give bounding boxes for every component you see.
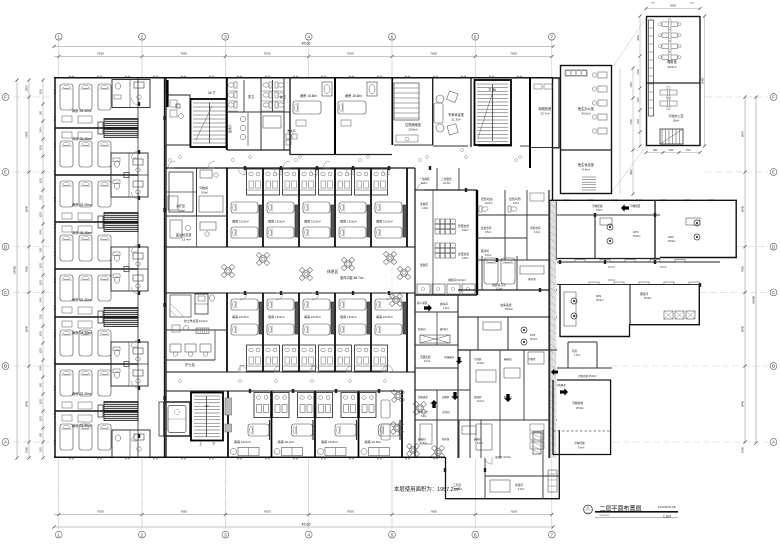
svg-text:2#: 2# xyxy=(205,404,209,408)
svg-text:7630: 7630 xyxy=(430,52,437,56)
svg-text:35.9m²: 35.9m² xyxy=(633,235,641,238)
svg-text:35.9m²: 35.9m² xyxy=(596,299,604,302)
svg-text:800: 800 xyxy=(40,110,43,115)
svg-text:医生检查室: 医生检查室 xyxy=(176,232,191,237)
svg-text:本层使用面积为：1957.2m²: 本层使用面积为：1957.2m² xyxy=(394,485,460,493)
svg-text:动物通道: 动物通道 xyxy=(418,395,428,399)
svg-text:污物间: 污物间 xyxy=(199,185,208,190)
svg-text:病房 28.45m²: 病房 28.45m² xyxy=(72,423,93,428)
svg-text:4: 4 xyxy=(307,532,310,537)
svg-text:病房 28.45m²: 病房 28.45m² xyxy=(72,108,93,113)
svg-text:2445: 2445 xyxy=(40,297,43,303)
svg-text:2: 2 xyxy=(141,532,144,537)
svg-text:9.5m²: 9.5m² xyxy=(485,231,491,234)
svg-text:5: 5 xyxy=(391,532,394,537)
svg-text:7.5m²: 7.5m² xyxy=(421,442,427,445)
svg-text:病房 19.5m²: 病房 19.5m² xyxy=(268,219,285,224)
svg-text:B: B xyxy=(772,364,775,369)
svg-text:6: 6 xyxy=(474,34,477,39)
svg-text:800: 800 xyxy=(40,432,43,437)
svg-text:9.6m²: 9.6m² xyxy=(578,447,584,450)
svg-text:洗水间: 洗水间 xyxy=(287,129,296,133)
svg-text:网络机房: 网络机房 xyxy=(539,106,552,111)
svg-text:病房 19.5m²: 病房 19.5m² xyxy=(376,219,393,224)
svg-text:5.9m²: 5.9m² xyxy=(421,415,427,418)
svg-text:800: 800 xyxy=(40,382,43,387)
svg-text:1200: 1200 xyxy=(40,195,43,201)
svg-text:洁净走廊: 洁净走廊 xyxy=(500,302,512,307)
svg-text:7630: 7630 xyxy=(347,509,354,513)
svg-text:清洗区 10.5m²: 清洗区 10.5m² xyxy=(495,455,511,459)
svg-text:3: 3 xyxy=(224,34,227,39)
svg-text:M1521: M1521 xyxy=(608,267,616,269)
svg-text:1600: 1600 xyxy=(40,331,43,337)
svg-text:病房 15.8m²: 病房 15.8m² xyxy=(365,439,382,444)
svg-text:7630: 7630 xyxy=(97,52,104,56)
svg-text:M1521: M1521 xyxy=(660,267,668,269)
svg-text:5: 5 xyxy=(391,34,394,39)
svg-text:病人通道: 病人通道 xyxy=(417,301,428,305)
svg-text:病房 19.5m²: 病房 19.5m² xyxy=(340,219,357,224)
svg-text:盥洗间: 盥洗间 xyxy=(228,124,232,133)
svg-text:器械间: 器械间 xyxy=(418,437,426,441)
svg-text:护士休息室14.2m²: 护士休息室14.2m² xyxy=(184,318,207,323)
svg-text:10.1m²: 10.1m² xyxy=(477,400,484,403)
svg-text:污洗区: 污洗区 xyxy=(474,357,482,361)
svg-text:7630: 7630 xyxy=(347,52,354,56)
svg-text:6845: 6845 xyxy=(25,205,29,212)
svg-text:10.3m²: 10.3m² xyxy=(443,182,451,185)
svg-text:45166: 45166 xyxy=(302,522,311,526)
svg-text:病房 28.45m²: 病房 28.45m² xyxy=(72,391,93,396)
svg-text:1330: 1330 xyxy=(637,97,640,103)
svg-text:13.4m²: 13.4m² xyxy=(182,238,191,242)
svg-text:1600: 1600 xyxy=(40,416,43,422)
svg-text:淋浴间 10.9m²: 淋浴间 10.9m² xyxy=(448,278,466,282)
svg-text:病房 28.45m²: 病房 28.45m² xyxy=(72,330,93,335)
svg-text:住院病案室: 住院病案室 xyxy=(405,122,421,127)
svg-text:发药大厅: 发药大厅 xyxy=(418,410,429,414)
svg-text:10.3m²: 10.3m² xyxy=(485,202,493,205)
svg-text:6.3m²: 6.3m² xyxy=(534,231,540,234)
svg-text:FLOOR PLAN: FLOOR PLAN xyxy=(658,505,676,509)
svg-text:9.5m²: 9.5m² xyxy=(596,209,602,212)
svg-text:财务室: 财务室 xyxy=(667,59,677,64)
svg-text:洗漱区: 洗漱区 xyxy=(420,263,428,267)
svg-text:4300: 4300 xyxy=(25,265,29,272)
svg-text:1230: 1230 xyxy=(668,150,674,152)
svg-text:休息区: 休息区 xyxy=(327,269,339,274)
svg-text:E: E xyxy=(4,170,7,175)
svg-text:紫外线: 紫外线 xyxy=(442,437,450,441)
svg-text:9.7m²: 9.7m² xyxy=(424,360,430,363)
svg-text:麻醉复苏室: 麻醉复苏室 xyxy=(492,283,506,287)
svg-text:OP4: OP4 xyxy=(633,230,639,234)
svg-text:7630: 7630 xyxy=(180,509,187,513)
svg-text:7630: 7630 xyxy=(97,509,104,513)
svg-text:女更衣室: 女更衣室 xyxy=(458,252,469,256)
svg-text:盥洗间(男): 盥洗间(男) xyxy=(509,197,521,201)
svg-text:4300: 4300 xyxy=(741,265,745,272)
svg-text:器械间: 器械间 xyxy=(504,357,512,361)
svg-text:机房: 机房 xyxy=(572,349,578,353)
svg-text:专家休息室: 专家休息室 xyxy=(448,112,464,117)
svg-text:病房 19.5m²: 病房 19.5m² xyxy=(268,314,285,319)
svg-text:换车间: 换车间 xyxy=(440,302,448,306)
svg-text:1600: 1600 xyxy=(40,348,43,354)
svg-text:病房 15.8m²: 病房 15.8m² xyxy=(300,93,317,98)
svg-text:病房 28.45m²: 病房 28.45m² xyxy=(72,297,93,302)
svg-text:3600: 3600 xyxy=(637,35,640,41)
svg-text:1720: 1720 xyxy=(685,150,691,152)
svg-text:20.8m²: 20.8m² xyxy=(408,128,417,132)
svg-text:1500: 1500 xyxy=(741,446,745,453)
svg-text:室内中庭 86.7m²: 室内中庭 86.7m² xyxy=(340,275,364,280)
svg-text:男更衣间: 男更衣间 xyxy=(530,226,541,230)
svg-text:4.9m²: 4.9m² xyxy=(422,207,429,210)
svg-text:男卫: 男卫 xyxy=(248,94,255,99)
svg-text:1600: 1600 xyxy=(40,89,43,95)
svg-text:15.7m²: 15.7m² xyxy=(540,112,549,116)
svg-text:2445: 2445 xyxy=(40,229,43,235)
svg-text:4300: 4300 xyxy=(670,4,676,8)
svg-text:污物通道: 污物通道 xyxy=(630,204,641,208)
svg-text:病房 28.45m²: 病房 28.45m² xyxy=(72,136,93,141)
svg-text:病房 19.5m²: 病房 19.5m² xyxy=(232,314,249,319)
svg-text:治疗室: 治疗室 xyxy=(176,203,185,208)
svg-text:7016: 7016 xyxy=(510,509,517,513)
svg-text:2445: 2445 xyxy=(40,127,43,133)
svg-text:敷料间: 敷料间 xyxy=(504,395,512,399)
svg-text:7: 7 xyxy=(551,532,554,537)
svg-text:25.9m²: 25.9m² xyxy=(576,407,584,410)
svg-text:7016: 7016 xyxy=(510,52,517,56)
svg-text:4.6m²: 4.6m² xyxy=(462,257,469,260)
svg-text:污物接收: 污物接收 xyxy=(572,401,583,405)
svg-text:8.3m²: 8.3m² xyxy=(485,254,491,257)
svg-text:盥洗间(女): 盥洗间(女) xyxy=(481,197,493,201)
svg-text:7630: 7630 xyxy=(430,509,437,513)
svg-text:1600: 1600 xyxy=(40,212,43,218)
svg-text:7456: 7456 xyxy=(630,119,633,125)
svg-text:洁净间: 洁净间 xyxy=(442,410,450,414)
svg-text:65.5m²: 65.5m² xyxy=(505,307,513,311)
svg-text:4: 4 xyxy=(307,34,310,39)
svg-text:34.6m²: 34.6m² xyxy=(668,65,677,69)
svg-text:8.9m²: 8.9m² xyxy=(462,229,469,232)
svg-text:1350: 1350 xyxy=(652,150,658,152)
svg-text:病房 28.45m²: 病房 28.45m² xyxy=(72,202,93,207)
svg-text:2700: 2700 xyxy=(637,69,640,75)
svg-text:F: F xyxy=(4,95,7,100)
svg-text:3862: 3862 xyxy=(630,169,633,175)
svg-text:P-P-01: P-P-01 xyxy=(585,512,590,514)
svg-text:18m²: 18m² xyxy=(673,119,679,123)
svg-text:病房 28.45m²: 病房 28.45m² xyxy=(72,230,93,235)
svg-text:1: 1 xyxy=(57,532,60,537)
svg-text:1330: 1330 xyxy=(637,119,640,125)
svg-text:女卫: 女卫 xyxy=(280,94,287,99)
svg-text:7: 7 xyxy=(551,34,554,39)
svg-text:二次更衣: 二次更衣 xyxy=(441,177,452,181)
svg-text:B: B xyxy=(4,364,7,369)
svg-text:9.4m²: 9.4m² xyxy=(513,202,519,205)
svg-text:污物通道: 污物通道 xyxy=(556,383,566,387)
svg-text:病房 15.8m²: 病房 15.8m² xyxy=(345,93,362,98)
svg-text:6: 6 xyxy=(474,532,477,537)
svg-text:1600: 1600 xyxy=(40,280,43,286)
svg-text:缓冲间: 缓冲间 xyxy=(440,327,448,331)
svg-text:2: 2 xyxy=(141,34,144,39)
svg-text:1500: 1500 xyxy=(25,446,29,453)
svg-text:洗漱区: 洗漱区 xyxy=(420,202,428,206)
svg-text:9.5m²: 9.5m² xyxy=(201,191,208,195)
svg-text:清洗区: 清洗区 xyxy=(474,395,482,399)
svg-text:M1521: M1521 xyxy=(608,280,616,282)
svg-text:21.3m²: 21.3m² xyxy=(451,118,460,122)
svg-text:病房 16.2m²: 病房 16.2m² xyxy=(278,439,295,444)
svg-text:苏醒室: 苏醒室 xyxy=(442,395,450,399)
svg-text:2# 下: 2# 下 xyxy=(208,91,216,95)
svg-text:34.2m²: 34.2m² xyxy=(581,112,590,116)
svg-text:35.9m²: 35.9m² xyxy=(530,338,537,341)
svg-text:1600: 1600 xyxy=(40,178,43,184)
svg-text:病房 19.5m²: 病房 19.5m² xyxy=(304,314,321,319)
svg-text:6845: 6845 xyxy=(25,325,29,332)
svg-text:6.3m²: 6.3m² xyxy=(518,488,524,491)
svg-text:E: E xyxy=(772,170,775,175)
svg-text:7630: 7630 xyxy=(180,52,187,56)
svg-text:6845: 6845 xyxy=(25,131,29,138)
svg-text:污车停放: 污车停放 xyxy=(574,441,585,445)
svg-text:一次换鞋: 一次换鞋 xyxy=(419,177,430,181)
svg-text:1350: 1350 xyxy=(630,82,633,88)
svg-text:9.4m²: 9.4m² xyxy=(582,168,590,172)
svg-text:6845: 6845 xyxy=(741,325,745,332)
svg-text:1500: 1500 xyxy=(25,85,29,92)
svg-text:病房 19.5m²: 病房 19.5m² xyxy=(304,219,321,224)
svg-text:无菌走廊: 无菌走廊 xyxy=(420,355,431,359)
svg-text:1600: 1600 xyxy=(40,145,43,151)
svg-text:OP5: OP5 xyxy=(530,333,536,337)
svg-text:医生办公室: 医生办公室 xyxy=(578,106,594,111)
svg-text:保温间: 保温间 xyxy=(640,292,648,296)
svg-text:800: 800 xyxy=(40,247,43,252)
svg-text:5.1m²: 5.1m² xyxy=(477,442,483,445)
svg-text:34080: 34080 xyxy=(13,265,17,274)
svg-text:污物走廊: 污物走廊 xyxy=(592,204,603,208)
svg-text:新茶间: 新茶间 xyxy=(418,327,426,331)
svg-text:病房 19.5m²: 病房 19.5m² xyxy=(376,314,393,319)
svg-text:35.9m²: 35.9m² xyxy=(668,240,676,243)
svg-text:刷手池: 刷手池 xyxy=(528,277,536,281)
svg-text:3: 3 xyxy=(224,532,227,537)
svg-text:污物区: 污物区 xyxy=(528,357,536,361)
svg-text:7630: 7630 xyxy=(264,52,271,56)
svg-text:下 2#: 下 2# xyxy=(488,88,496,92)
svg-text:2445: 2445 xyxy=(40,365,43,371)
svg-text:7630: 7630 xyxy=(264,509,271,513)
svg-text:1500: 1500 xyxy=(40,447,43,453)
svg-text:SCALE(M): SCALE(M) xyxy=(600,514,610,517)
svg-text:65.9m²: 65.9m² xyxy=(644,297,652,300)
svg-text:病房 15.8m²: 病房 15.8m² xyxy=(321,439,338,444)
svg-text:病房 19.5m²: 病房 19.5m² xyxy=(340,314,357,319)
svg-text:污物走廊 15.9m²: 污物走廊 15.9m² xyxy=(578,374,597,378)
svg-text:病房 19.5m²: 病房 19.5m² xyxy=(232,219,249,224)
svg-text:45166: 45166 xyxy=(302,42,311,46)
svg-text:7.9m²: 7.9m² xyxy=(443,307,449,310)
svg-text:存器械间: 存器械间 xyxy=(444,355,455,359)
svg-text:1600: 1600 xyxy=(40,399,43,405)
svg-text:1200: 1200 xyxy=(40,314,43,320)
svg-text:15.9m²: 15.9m² xyxy=(477,362,484,365)
svg-text:6875: 6875 xyxy=(741,130,745,137)
svg-text:9.8m²: 9.8m² xyxy=(178,209,185,213)
svg-text:OP3: OP3 xyxy=(668,235,674,239)
svg-text:6845: 6845 xyxy=(741,400,745,407)
svg-text:缓冲间: 缓冲间 xyxy=(481,249,489,253)
svg-text:6845: 6845 xyxy=(25,400,29,407)
svg-text:7.3m²: 7.3m² xyxy=(574,354,580,357)
svg-text:男更衣室: 男更衣室 xyxy=(458,224,469,228)
svg-text:F: F xyxy=(772,95,775,100)
svg-text:医生休息室: 医生休息室 xyxy=(578,162,594,167)
svg-text:病房 16.2m²: 病房 16.2m² xyxy=(234,439,251,444)
svg-text:女更衣间: 女更衣间 xyxy=(481,226,492,230)
svg-text:11480: 11480 xyxy=(701,77,705,85)
svg-text:1: 1 xyxy=(57,34,60,39)
svg-text:1600: 1600 xyxy=(40,263,43,269)
svg-text:护士站: 护士站 xyxy=(185,362,195,367)
svg-text:6845: 6845 xyxy=(741,205,745,212)
svg-text:配液间: 配液间 xyxy=(515,483,523,487)
svg-text:OP1: OP1 xyxy=(596,294,602,298)
svg-text:34080: 34080 xyxy=(752,295,756,304)
svg-text:行政办公室: 行政办公室 xyxy=(668,113,683,118)
